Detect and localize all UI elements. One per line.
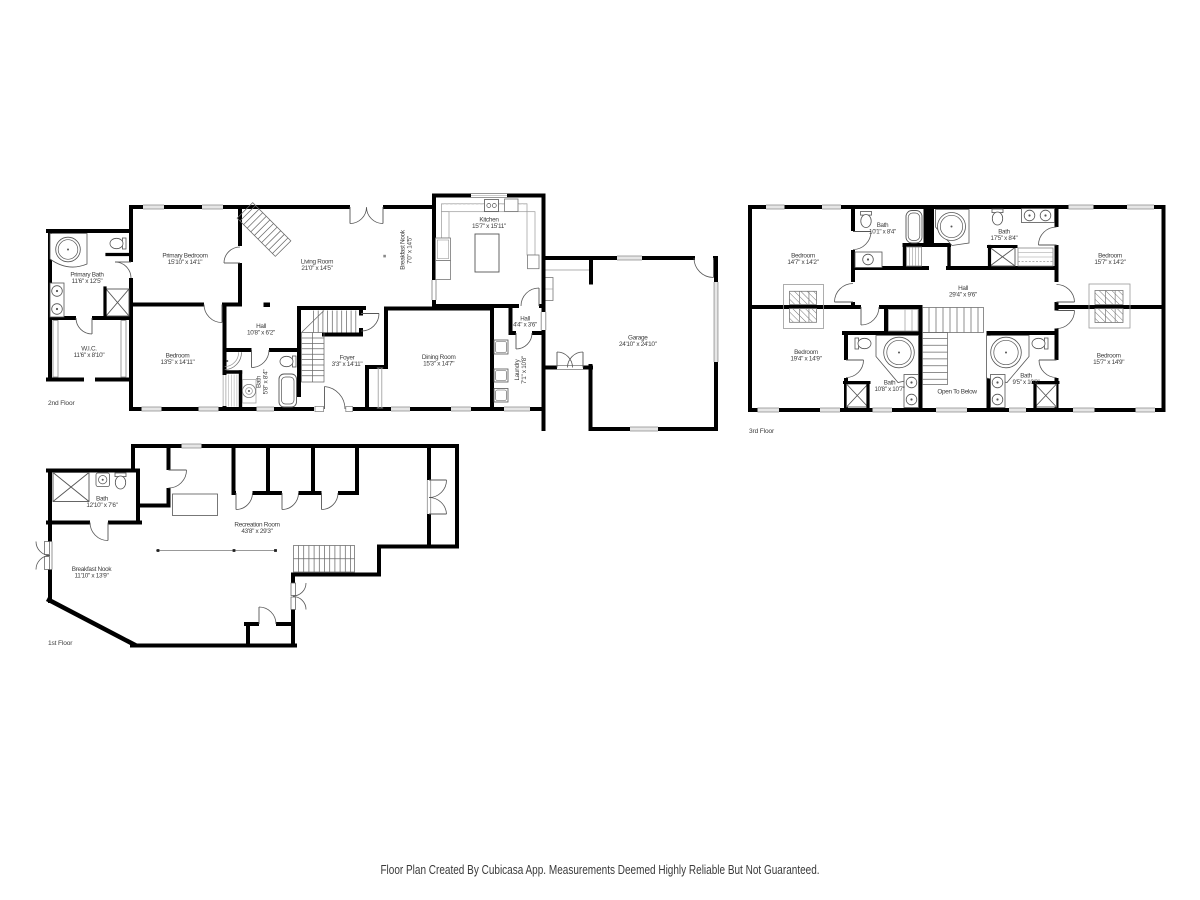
svg-text:29'4" x 9'6": 29'4" x 9'6" <box>949 292 977 299</box>
svg-text:Bath: Bath <box>256 375 263 388</box>
svg-text:15'7" x 14'9": 15'7" x 14'9" <box>1093 359 1124 366</box>
svg-text:21'0" x 14'5": 21'0" x 14'5" <box>301 265 332 272</box>
svg-text:12'10" x 7'6": 12'10" x 7'6" <box>86 502 117 509</box>
svg-text:7'1" x 10'8": 7'1" x 10'8" <box>521 356 528 384</box>
svg-text:3rd Floor: 3rd Floor <box>749 428 775 435</box>
svg-text:15'10" x 14'1": 15'10" x 14'1" <box>168 259 202 266</box>
svg-text:2nd Floor: 2nd Floor <box>48 400 75 407</box>
svg-text:Breakfast Nook: Breakfast Nook <box>400 229 407 270</box>
svg-text:43'8" x 29'3": 43'8" x 29'3" <box>241 528 272 535</box>
svg-text:Open To Below: Open To Below <box>937 389 977 396</box>
svg-text:15'3" x 14'7": 15'3" x 14'7" <box>423 361 454 368</box>
svg-text:14'7" x 14'2": 14'7" x 14'2" <box>787 259 818 266</box>
svg-text:10'8" x 10'7": 10'8" x 10'7" <box>874 386 904 393</box>
svg-text:13'5" x 14'11": 13'5" x 14'11" <box>161 359 195 366</box>
svg-text:11'6" x 12'5": 11'6" x 12'5" <box>72 278 103 285</box>
svg-text:9'5" x 10'8": 9'5" x 10'8" <box>1013 379 1040 386</box>
svg-text:Laundry: Laundry <box>514 358 521 380</box>
svg-text:4'4" x 3'6": 4'4" x 3'6" <box>513 322 537 329</box>
svg-text:11'10" x 13'9": 11'10" x 13'9" <box>75 573 109 580</box>
svg-text:10'1" x 8'4": 10'1" x 8'4" <box>869 228 896 235</box>
svg-text:7'0" x 14'5": 7'0" x 14'5" <box>407 236 414 264</box>
svg-text:10'8" x 6'2": 10'8" x 6'2" <box>247 330 275 337</box>
svg-text:1st Floor: 1st Floor <box>48 640 73 647</box>
svg-text:19'4" x 14'9": 19'4" x 14'9" <box>790 356 821 363</box>
svg-text:5'8" x 8'4": 5'8" x 8'4" <box>263 370 270 395</box>
svg-text:11'6" x 8'10": 11'6" x 8'10" <box>74 352 105 359</box>
svg-text:17'5" x 8'4": 17'5" x 8'4" <box>991 235 1018 242</box>
svg-text:15'7" x 14'2": 15'7" x 14'2" <box>1094 259 1125 266</box>
svg-text:3'3" x 14'11": 3'3" x 14'11" <box>332 361 363 368</box>
svg-text:24'10" x 24'10": 24'10" x 24'10" <box>619 341 657 348</box>
svg-text:15'7" x 15'11": 15'7" x 15'11" <box>472 223 506 230</box>
